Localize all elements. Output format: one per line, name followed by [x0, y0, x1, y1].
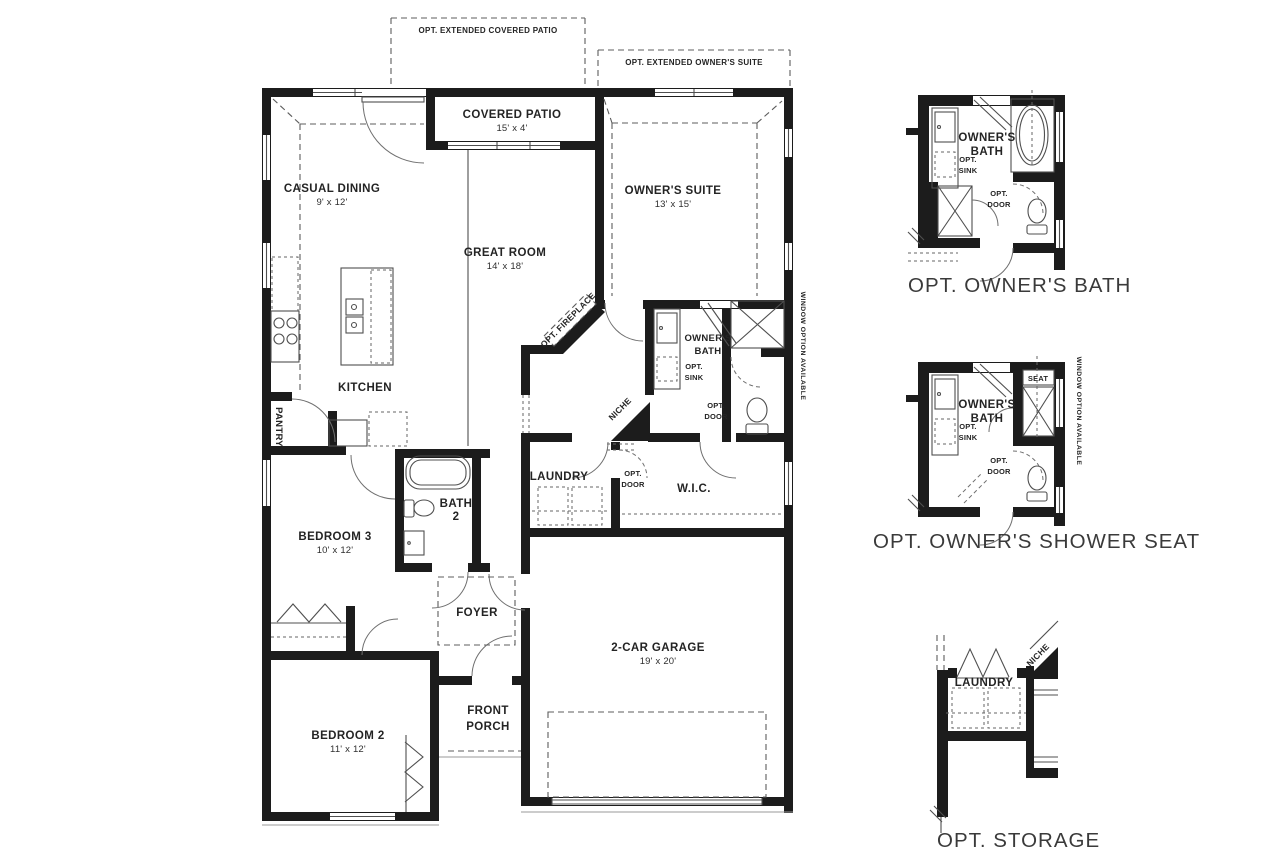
- garage-dims: 19' x 20': [640, 656, 677, 667]
- inset-bath-walls: [906, 95, 1065, 270]
- inset-seat-seat-label: SEAT: [1028, 374, 1048, 383]
- window-option-label-main: WINDOW OPTION AVAILABLE: [799, 292, 806, 401]
- inset-bath-caption: OPT. OWNER'S BATH: [908, 274, 1131, 297]
- inset-seat-opt-door-door: DOOR: [987, 467, 1011, 476]
- inset-storage-caption: OPT. STORAGE: [937, 829, 1100, 852]
- bedroom3-dims: 10' x 12': [317, 545, 354, 556]
- foyer-label: FOYER: [456, 607, 498, 619]
- pantry-label: PANTRY: [273, 407, 284, 447]
- inset-storage-walls: [937, 647, 1058, 817]
- opt-extended-covered-patio-label: OPT. EXTENDED COVERED PATIO: [419, 26, 558, 35]
- inset-bath-opt-sink-sink: SINK: [959, 166, 978, 175]
- inset-seat-opt-sink-opt: OPT.: [959, 422, 976, 431]
- front-porch-label-line1: FRONT: [467, 705, 509, 717]
- casual-dining-label: CASUAL DINING: [284, 183, 380, 195]
- kitchen-label: KITCHEN: [338, 382, 392, 394]
- opt-extended-owners-suite-label: OPT. EXTENDED OWNER'S SUITE: [625, 58, 763, 67]
- laundry-fixtures: [532, 487, 608, 525]
- inset-bath-opt-sink-opt: OPT.: [959, 155, 976, 164]
- inset-bath-opt-door-door: DOOR: [987, 200, 1011, 209]
- inset-seat-opt-door-opt: OPT.: [990, 456, 1007, 465]
- opt-sink-label-sink: SINK: [685, 373, 704, 382]
- opt-door-label-opt-laundry: OPT.: [624, 469, 641, 478]
- floor-plan-drawing: OPT. FIREPLACE NICHE: [0, 0, 1280, 853]
- inset-bath-room-line1: OWNER'S: [958, 132, 1015, 144]
- opt-door-label-opt-bath: OPT.: [707, 401, 724, 410]
- bath2-label-line2: 2: [453, 511, 460, 523]
- opt-extended-owners-suite-outline: [598, 50, 790, 88]
- inset-opt-owners-bath: OWNER'S BATH OPT. SINK OPT. DOOR OPT. OW…: [906, 90, 1131, 297]
- niche-label: NICHE: [606, 395, 633, 422]
- inset-seat-caption: OPT. OWNER'S SHOWER SEAT: [873, 530, 1200, 553]
- bedroom2-dims: 11' x 12': [330, 744, 366, 755]
- bedroom2-label: BEDROOM 2: [311, 730, 384, 742]
- covered-patio-dims: 15' x 4': [496, 123, 527, 134]
- inset-opt-shower-seat: SEAT OWNER'S BATH OPT. SINK OPT. DOOR WI…: [873, 356, 1200, 553]
- kitchen-fixtures: [271, 257, 407, 446]
- window-option-label-inset: WINDOW OPTION AVAILABLE: [1075, 357, 1082, 466]
- inset-storage-laundry-label: LAUNDRY: [955, 677, 1014, 689]
- owners-bath-label-line2: BATH: [695, 346, 722, 357]
- great-room-dims: 14' x 18': [487, 261, 524, 272]
- inset-bath-opt-door-opt: OPT.: [990, 189, 1007, 198]
- owners-suite-label: OWNER'S SUITE: [625, 185, 722, 197]
- opt-door-label-door-laundry: DOOR: [621, 480, 645, 489]
- inset-seat-room-line1: OWNER'S: [958, 399, 1015, 411]
- bedroom3-label: BEDROOM 3: [298, 531, 371, 543]
- inset-opt-storage: LAUNDRY NICHE OPT. STORAGE: [930, 621, 1100, 852]
- floor-plan-page: OPT. FIREPLACE NICHE: [0, 0, 1280, 853]
- opt-door-label-door-bath: DOOR: [704, 412, 728, 421]
- laundry-label: LAUNDRY: [530, 471, 589, 483]
- bath2-label-line1: BATH: [440, 498, 473, 510]
- covered-patio-label: COVERED PATIO: [463, 109, 562, 121]
- great-room-label: GREAT ROOM: [464, 247, 546, 259]
- garage-label: 2-CAR GARAGE: [611, 642, 705, 654]
- owners-suite-dims: 13' x 15': [655, 199, 692, 210]
- opt-sink-label-opt: OPT.: [685, 362, 702, 371]
- wic-label: W.I.C.: [677, 483, 711, 495]
- casual-dining-dims: 9' x 12': [316, 197, 347, 208]
- front-porch-label-line2: PORCH: [466, 721, 510, 733]
- inset-seat-opt-sink-sink: SINK: [959, 433, 978, 442]
- owners-bath-label-line1: OWNER'S: [684, 333, 731, 344]
